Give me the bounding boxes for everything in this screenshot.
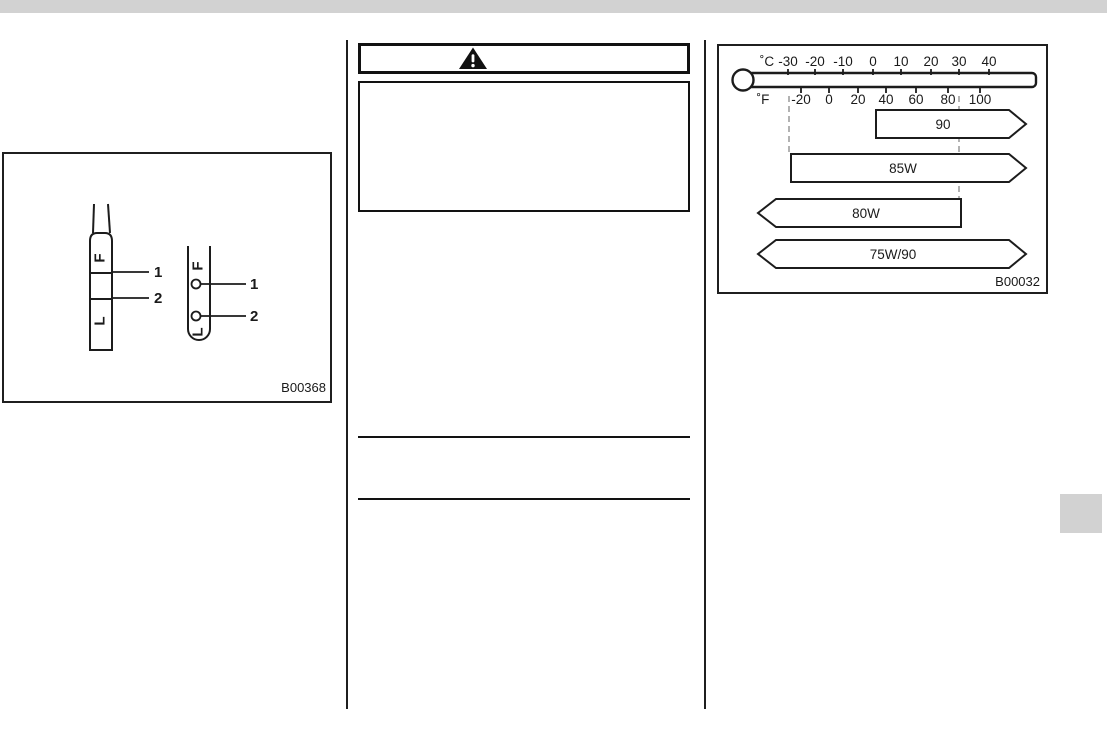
callout-number-2: 2: [154, 290, 162, 307]
thermometer-tube: [748, 73, 1036, 87]
celsius-scale-labels: ˚C -30 -20 -10 0 10 20 30 40: [760, 54, 997, 69]
column-divider: [704, 40, 706, 709]
blade-dipstick-drawing: [90, 204, 149, 350]
viscosity-bars: [758, 110, 1026, 268]
bar-label-75w90: 75W/90: [870, 247, 917, 262]
fahrenheit-tick-label: 80: [940, 92, 955, 107]
viscosity-chart-box: ˚C -30 -20 -10 0 10 20 30 40 ˚F -20 0 20…: [717, 44, 1048, 294]
tube-full-mark: F: [190, 261, 207, 270]
fahrenheit-tick-label: 40: [878, 92, 893, 107]
column-divider: [346, 40, 348, 709]
celsius-unit-label: ˚C: [760, 54, 774, 69]
thermometer-bulb: [733, 70, 754, 91]
warning-header-box: [358, 43, 690, 74]
tube-low-mark: L: [190, 327, 207, 336]
tube-dipstick-drawing: [188, 246, 246, 340]
dipstick-tube: [188, 246, 210, 340]
celsius-tick-label: 40: [981, 54, 996, 69]
thermometer: [733, 69, 1037, 93]
fahrenheit-tick-label: 0: [825, 92, 833, 107]
celsius-tick-label: 0: [869, 54, 877, 69]
dipstick-figure-box: F L 1 2 F L 1 2 B00368: [2, 152, 332, 403]
bar-label-90: 90: [935, 117, 950, 132]
celsius-tick-label: 10: [893, 54, 908, 69]
fahrenheit-unit-label: ˚F: [757, 92, 770, 107]
fahrenheit-scale-labels: ˚F -20 0 20 40 60 80 100: [757, 92, 992, 107]
celsius-tick-label: -10: [833, 54, 853, 69]
fahrenheit-tick-label: 20: [850, 92, 865, 107]
warning-body-box: [358, 81, 690, 212]
page-edge-tab: [1060, 494, 1102, 533]
callout-number-2: 2: [250, 308, 258, 325]
warning-triangle-icon: [458, 47, 488, 70]
blade-full-mark: F: [92, 253, 109, 262]
bar-label-80w: 80W: [852, 206, 880, 221]
page-top-bar: [0, 0, 1107, 13]
dipstick-blade: [90, 233, 112, 350]
figure-code-label: B00368: [281, 380, 326, 395]
manual-page: F L 1 2 F L 1 2 B00368: [0, 0, 1107, 743]
dipstick-handle-line: [93, 204, 94, 233]
figure-code-label: B00032: [995, 274, 1040, 289]
celsius-tick-label: -20: [805, 54, 825, 69]
celsius-tick-label: -30: [778, 54, 798, 69]
celsius-tick-label: 20: [923, 54, 938, 69]
fahrenheit-tick-label: -20: [791, 92, 811, 107]
fahrenheit-tick-label: 60: [908, 92, 923, 107]
exclamation-dot: [471, 64, 474, 67]
note-rule-bottom: [358, 498, 690, 500]
viscosity-chart-drawing: ˚C -30 -20 -10 0 10 20 30 40 ˚F -20 0 20…: [719, 46, 1046, 292]
fahrenheit-tick-label: 100: [969, 92, 992, 107]
callout-number-1: 1: [154, 264, 162, 281]
full-hole: [192, 280, 201, 289]
blade-low-mark: L: [92, 316, 109, 325]
low-hole: [192, 312, 201, 321]
callout-number-1: 1: [250, 276, 258, 293]
viscosity-bar-90: [876, 110, 1026, 138]
note-rule-top: [358, 436, 690, 438]
exclamation-bar: [472, 54, 475, 62]
dipstick-figure-drawing: F L 1 2 F L 1 2 B00368: [4, 154, 330, 401]
bar-label-85w: 85W: [889, 161, 917, 176]
dipstick-handle-line: [108, 204, 110, 233]
celsius-tick-label: 30: [951, 54, 966, 69]
